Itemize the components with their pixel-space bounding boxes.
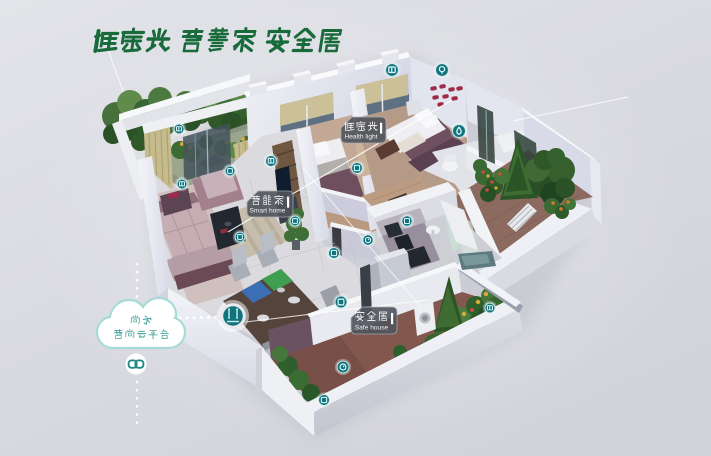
svg-text:Safe house: Safe house xyxy=(355,325,389,332)
svg-text:Health light: Health light xyxy=(345,134,378,141)
svg-text:Smart home: Smart home xyxy=(250,208,286,215)
